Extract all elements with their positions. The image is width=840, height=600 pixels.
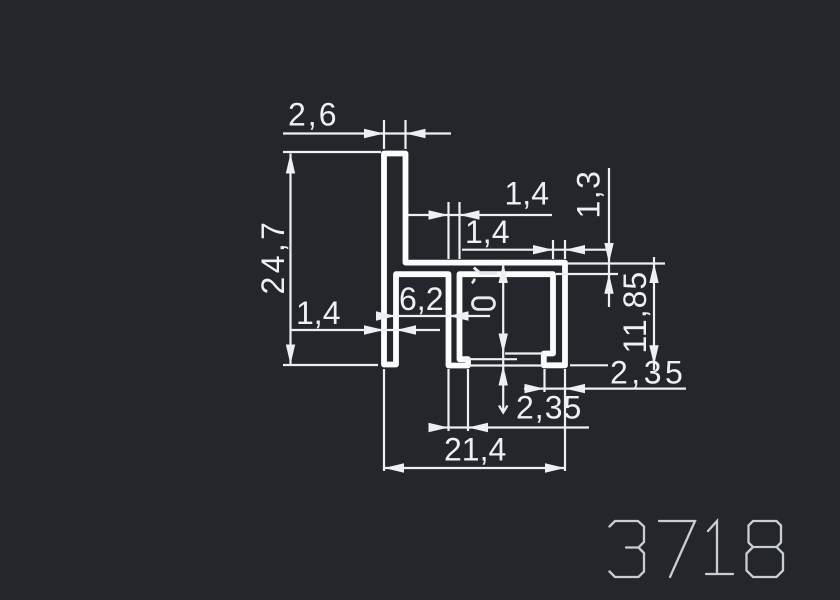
svg-text:1,4: 1,4 [296, 295, 340, 331]
svg-text:21,4: 21,4 [444, 432, 506, 468]
svg-text:11,85: 11,85 [617, 271, 653, 354]
svg-text:6,2: 6,2 [399, 281, 443, 317]
svg-text:2,6: 2,6 [288, 97, 338, 133]
svg-text:1,3: 1,3 [571, 170, 607, 219]
svg-text:2,35: 2,35 [610, 355, 686, 391]
svg-text:1,4: 1,4 [505, 176, 549, 212]
svg-text:2,35: 2,35 [516, 390, 582, 426]
svg-text:24,7: 24,7 [255, 219, 291, 295]
svg-text:1,4: 1,4 [465, 214, 509, 250]
